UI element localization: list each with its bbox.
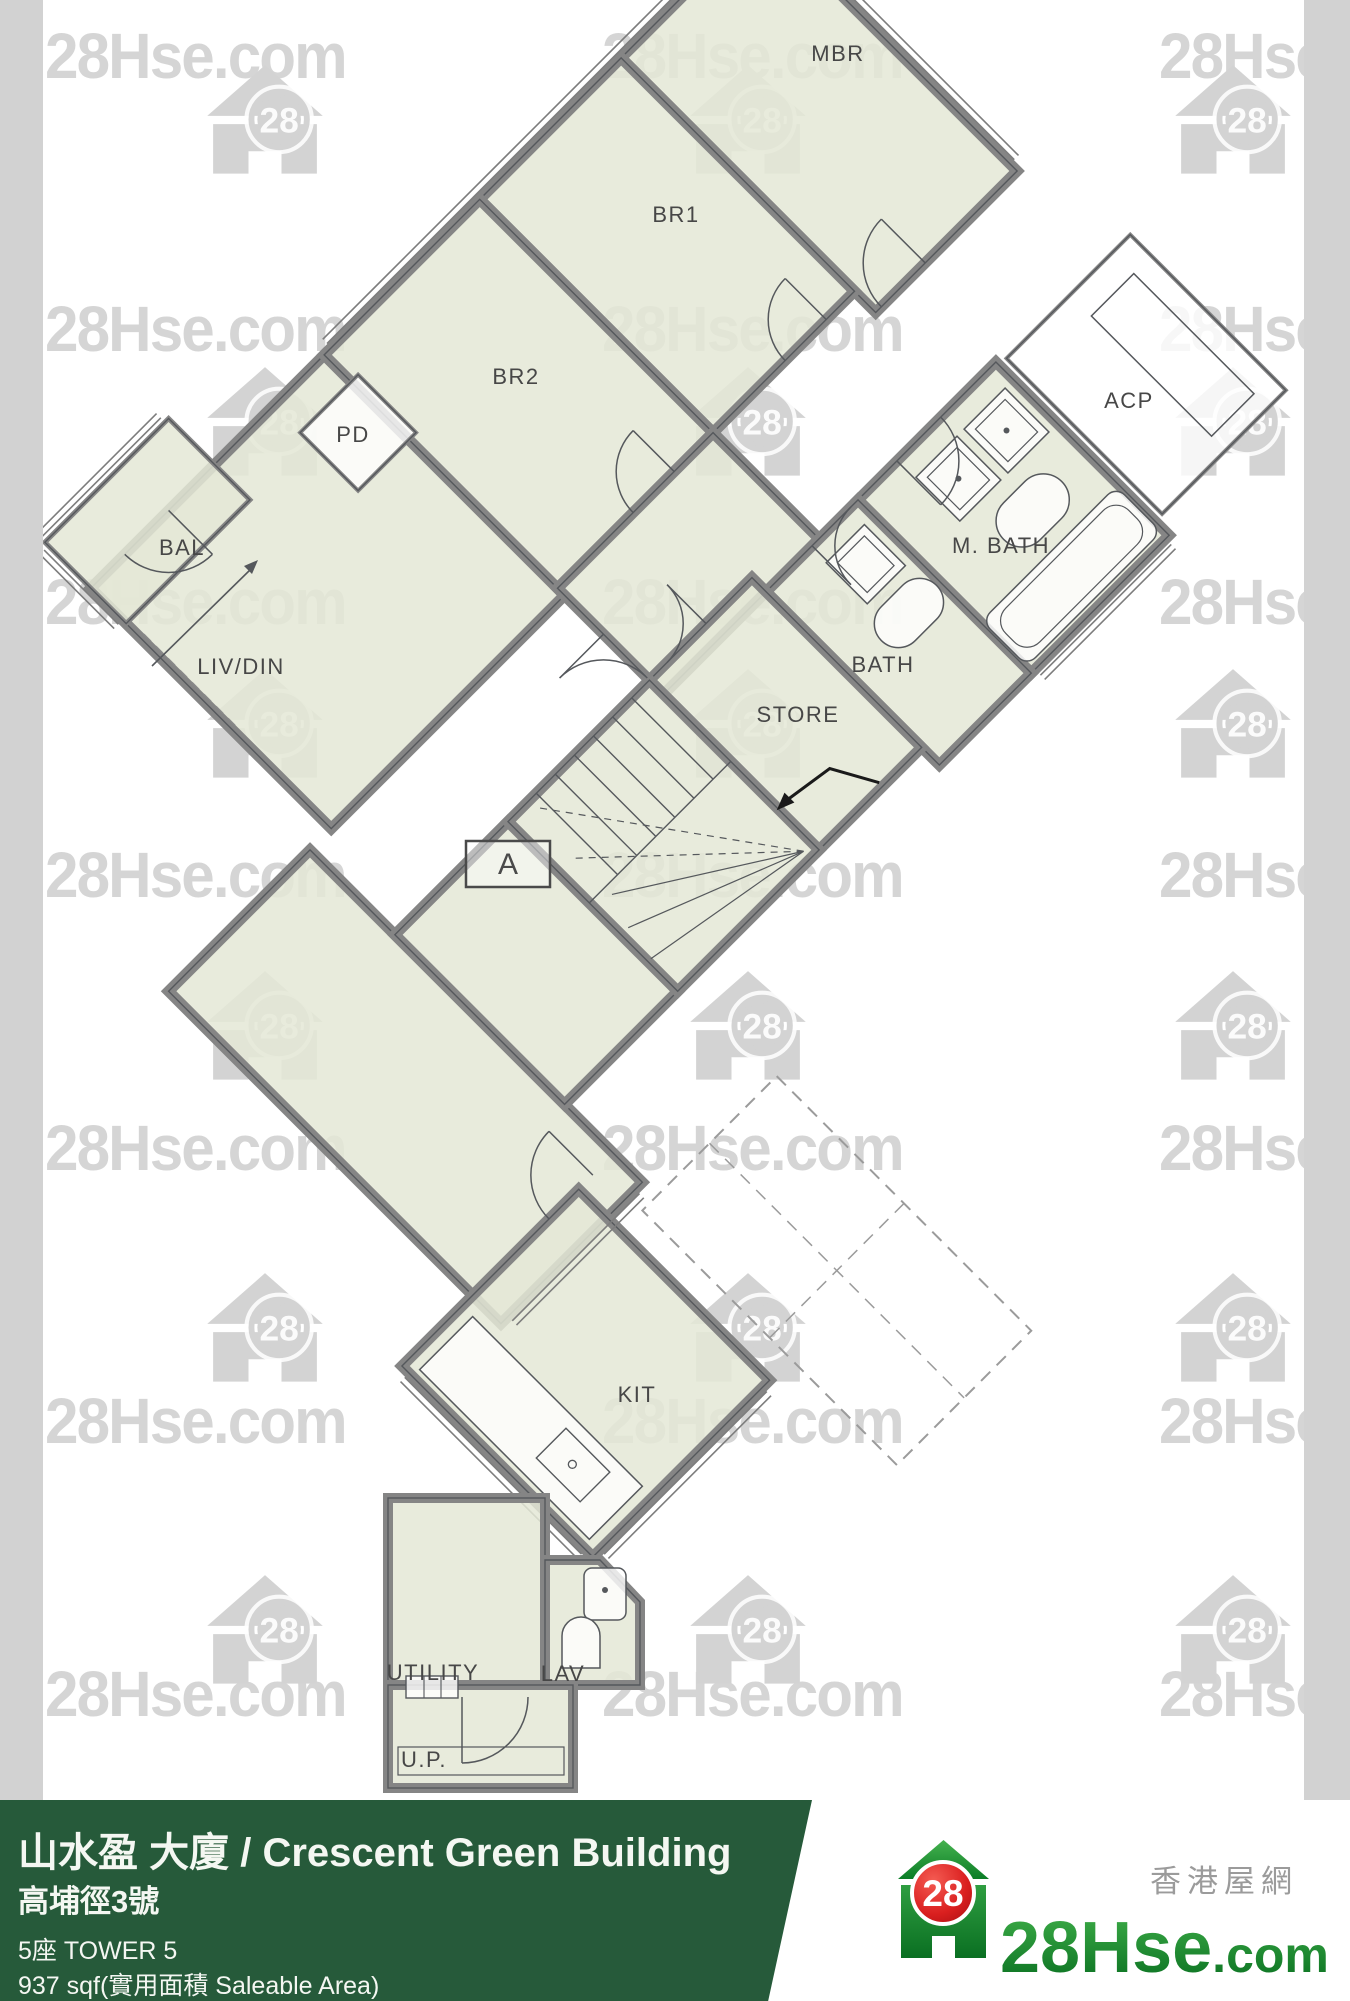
room-label-br1: BR1 (652, 202, 699, 227)
28hse-brand-logo: 28 香港屋網 28Hse.com (850, 1800, 1350, 2001)
room-label-acp: ACP (1104, 388, 1154, 413)
lav-basin-drain (602, 1587, 608, 1593)
floorplan-page: 28Hse.com28Hse.com28Hse.com28Hse.com28Hs… (0, 0, 1350, 2001)
room-label-kit: KIT (618, 1382, 657, 1407)
room-label-liv-din: LIV/DIN (197, 654, 285, 679)
room-label-pd: PD (336, 422, 370, 447)
saleable-area: 937 sqf(實用面積 Saleable Area) (18, 1966, 379, 2001)
28hse-house-icon: 28 (898, 1840, 989, 1958)
footer-info-bar: 山水盈 大廈 / Crescent Green Building 高埔徑3號 5… (0, 1800, 812, 2001)
room-label-lav: LAV (541, 1661, 585, 1686)
room-label-m-bath: M. BATH (952, 533, 1050, 558)
brand-site-name: 28Hse.com (1000, 1908, 1329, 1988)
room-label-store: STORE (757, 702, 840, 727)
building-title: 山水盈 大廈 / Crescent Green Building (18, 1820, 731, 1878)
floorplan-drawing: AMBRBR1BR2PDACPBALM. BATHLIV/DINBATHSTOR… (0, 0, 1350, 2001)
room-label-bal: BAL (159, 535, 205, 560)
room-walls (388, 1498, 545, 1685)
building-address: 高埔徑3號 (18, 1876, 159, 1921)
right-edge-strip (1304, 0, 1350, 1800)
brand-site-main: 28Hse (1000, 1908, 1212, 1988)
room-label-utility: UTILITY (387, 1660, 479, 1685)
tower-label: 5座 TOWER 5 (18, 1931, 177, 1967)
left-edge-strip (0, 0, 43, 1800)
room-walls (388, 1685, 573, 1788)
brand-site-tld: .com (1212, 1927, 1329, 1983)
rotated-plan-group (0, 0, 1350, 1672)
room-label-mbr: MBR (811, 41, 864, 66)
brand-badge-number: 28 (922, 1873, 963, 1914)
room-label-bath: BATH (851, 652, 914, 677)
lav-basin (584, 1568, 626, 1620)
room-label-up: U.P. (401, 1747, 447, 1772)
unit-label: A (498, 848, 518, 881)
brand-chinese-name: 香港屋網 (1150, 1864, 1298, 1899)
room-label-br2: BR2 (492, 364, 539, 389)
